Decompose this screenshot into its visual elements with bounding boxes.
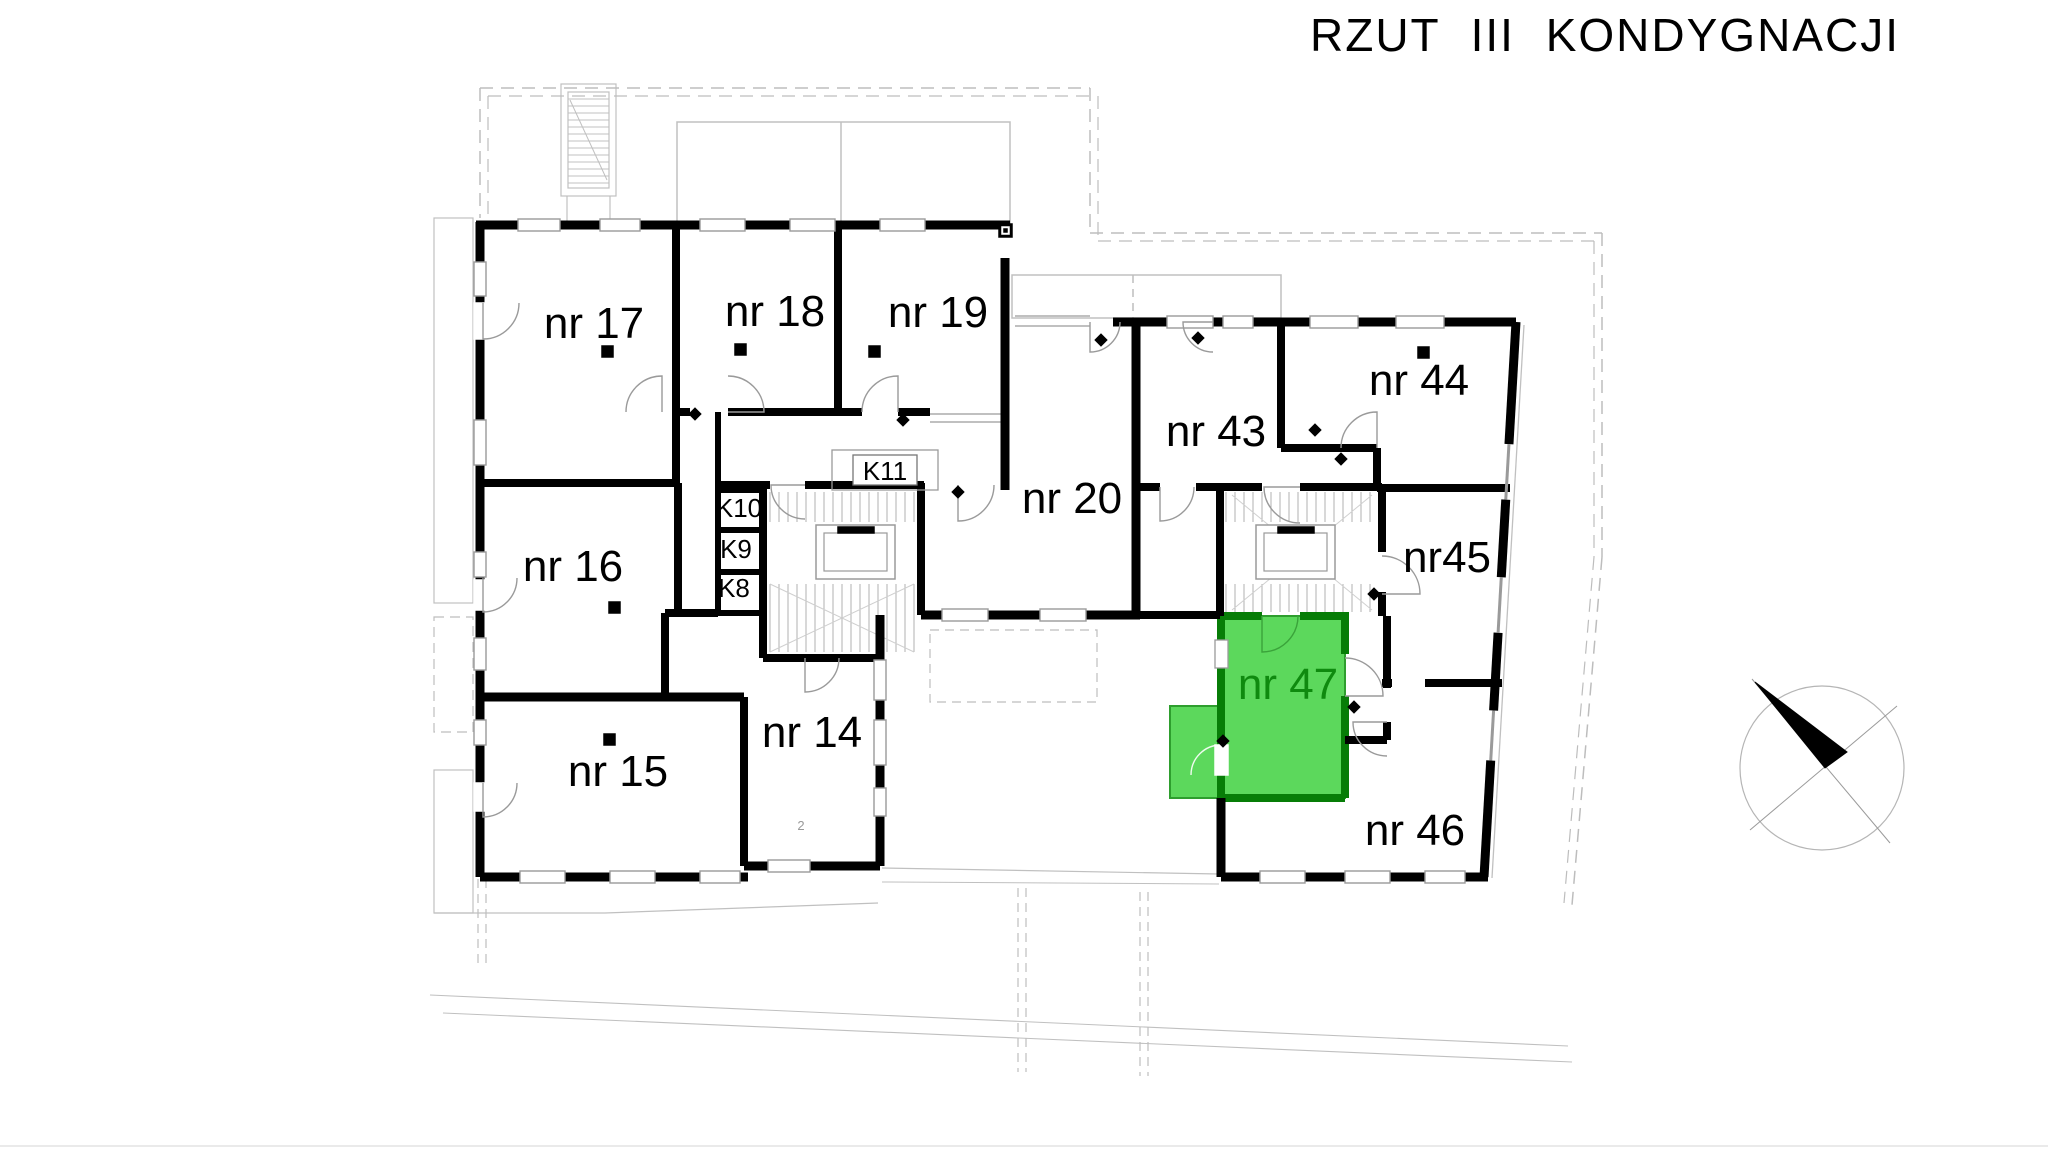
door-arc (626, 376, 662, 412)
wall-line (1501, 500, 1505, 578)
window (520, 871, 565, 883)
outline-rect (1012, 275, 1281, 318)
room-dot-marker (609, 602, 620, 613)
room-label-nr46: nr 46 (1365, 806, 1465, 855)
window (880, 219, 925, 231)
window (700, 219, 745, 231)
tiny-mark-2: 2 (797, 818, 804, 833)
elevator-door-mark (1278, 527, 1314, 533)
window (1260, 871, 1305, 883)
drawing-title: RZUT III KONDYGNACJI (0, 8, 1900, 62)
closet-label-K8: K8 (718, 573, 750, 603)
window (874, 660, 886, 700)
site-terrain-line (430, 995, 1568, 1046)
window (1215, 640, 1228, 668)
room-label-nr44: nr 44 (1369, 356, 1469, 405)
room-label-nr14: nr 14 (762, 708, 862, 757)
elevator-door-mark (838, 527, 874, 533)
room-label-nr19: nr 19 (888, 288, 988, 337)
door-arc (1264, 487, 1300, 523)
room-label-nr17: nr 17 (544, 299, 644, 348)
wall-line (882, 868, 1219, 874)
window (474, 720, 486, 745)
outline-rect (474, 580, 486, 610)
window (700, 871, 740, 883)
outline-rect (434, 218, 473, 603)
window (1040, 609, 1086, 621)
door-arc (862, 376, 898, 412)
door-arc (483, 578, 517, 612)
window (874, 720, 886, 765)
window (1396, 316, 1444, 328)
door-arc (1345, 658, 1383, 696)
outline-rect (434, 617, 473, 732)
room-label-nr45: nr45 (1403, 533, 1491, 582)
wall-line (1491, 711, 1494, 761)
window (1425, 871, 1465, 883)
courtyard-dashed-outline (930, 630, 1097, 702)
door-direction-marker (1335, 453, 1347, 465)
compass-line (1750, 706, 1897, 830)
site-dashed-line (1564, 557, 1594, 903)
outline-rect (677, 122, 1010, 225)
outline-rect (474, 303, 486, 339)
wall-line (1498, 577, 1501, 633)
window (474, 262, 486, 296)
outline-rect (434, 770, 473, 913)
window (1223, 316, 1253, 328)
room-label-nr16: nr 16 (523, 542, 623, 591)
drawing-page: RZUT III KONDYGNACJI nr 17nr 18nr 19nr 2… (0, 0, 2048, 1152)
door-arc (1160, 487, 1194, 521)
door-arc (483, 303, 519, 339)
window (790, 219, 835, 231)
window (474, 638, 486, 670)
door-arc (483, 783, 517, 817)
closet-label-K10: K10 (716, 493, 762, 523)
door-direction-marker (1192, 332, 1204, 344)
door-direction-marker (1309, 424, 1321, 436)
window (610, 871, 655, 883)
door-direction-marker (1095, 334, 1107, 346)
window (474, 552, 486, 577)
room-label-nr18: nr 18 (725, 287, 825, 336)
door-direction-marker (689, 408, 701, 420)
outline-rect (1004, 229, 1007, 232)
wall-line (882, 882, 1219, 884)
room-label-nr15: nr 15 (568, 747, 668, 796)
door-arc (805, 658, 839, 692)
door-direction-marker (952, 486, 964, 498)
north-arrow-icon (1740, 686, 1904, 850)
closet-label-K9: K9 (720, 534, 752, 564)
wall-line (1494, 633, 1498, 711)
room-label-nr20: nr 20 (1022, 474, 1122, 523)
room-dot-marker (604, 734, 615, 745)
door-arc (1341, 412, 1377, 448)
room-label-nr43: nr 43 (1166, 407, 1266, 456)
door-arc (728, 376, 764, 412)
door-arc (958, 485, 994, 521)
window (942, 609, 988, 621)
window (518, 219, 560, 231)
outline-rect (474, 783, 486, 811)
window (474, 420, 486, 465)
site-dashed-line (1572, 557, 1602, 905)
window (600, 219, 640, 231)
room-label-nr47: nr 47 (1238, 660, 1338, 709)
floor-plan: nr 17nr 18nr 19nr 20nr 43nr 44nr45nr 46n… (0, 0, 2048, 1152)
window (1310, 316, 1358, 328)
door-direction-marker (1348, 701, 1360, 713)
wall-line (605, 903, 878, 913)
window (874, 788, 886, 816)
wall-line (1509, 322, 1516, 444)
wall-line (570, 100, 607, 180)
room-dot-marker (869, 346, 880, 357)
window (1345, 871, 1390, 883)
room-dot-marker (735, 344, 746, 355)
north-arrow-pointer (1755, 682, 1847, 768)
window (768, 860, 810, 872)
closet-label-K11: K11 (863, 456, 907, 486)
wall-line (1484, 760, 1491, 877)
